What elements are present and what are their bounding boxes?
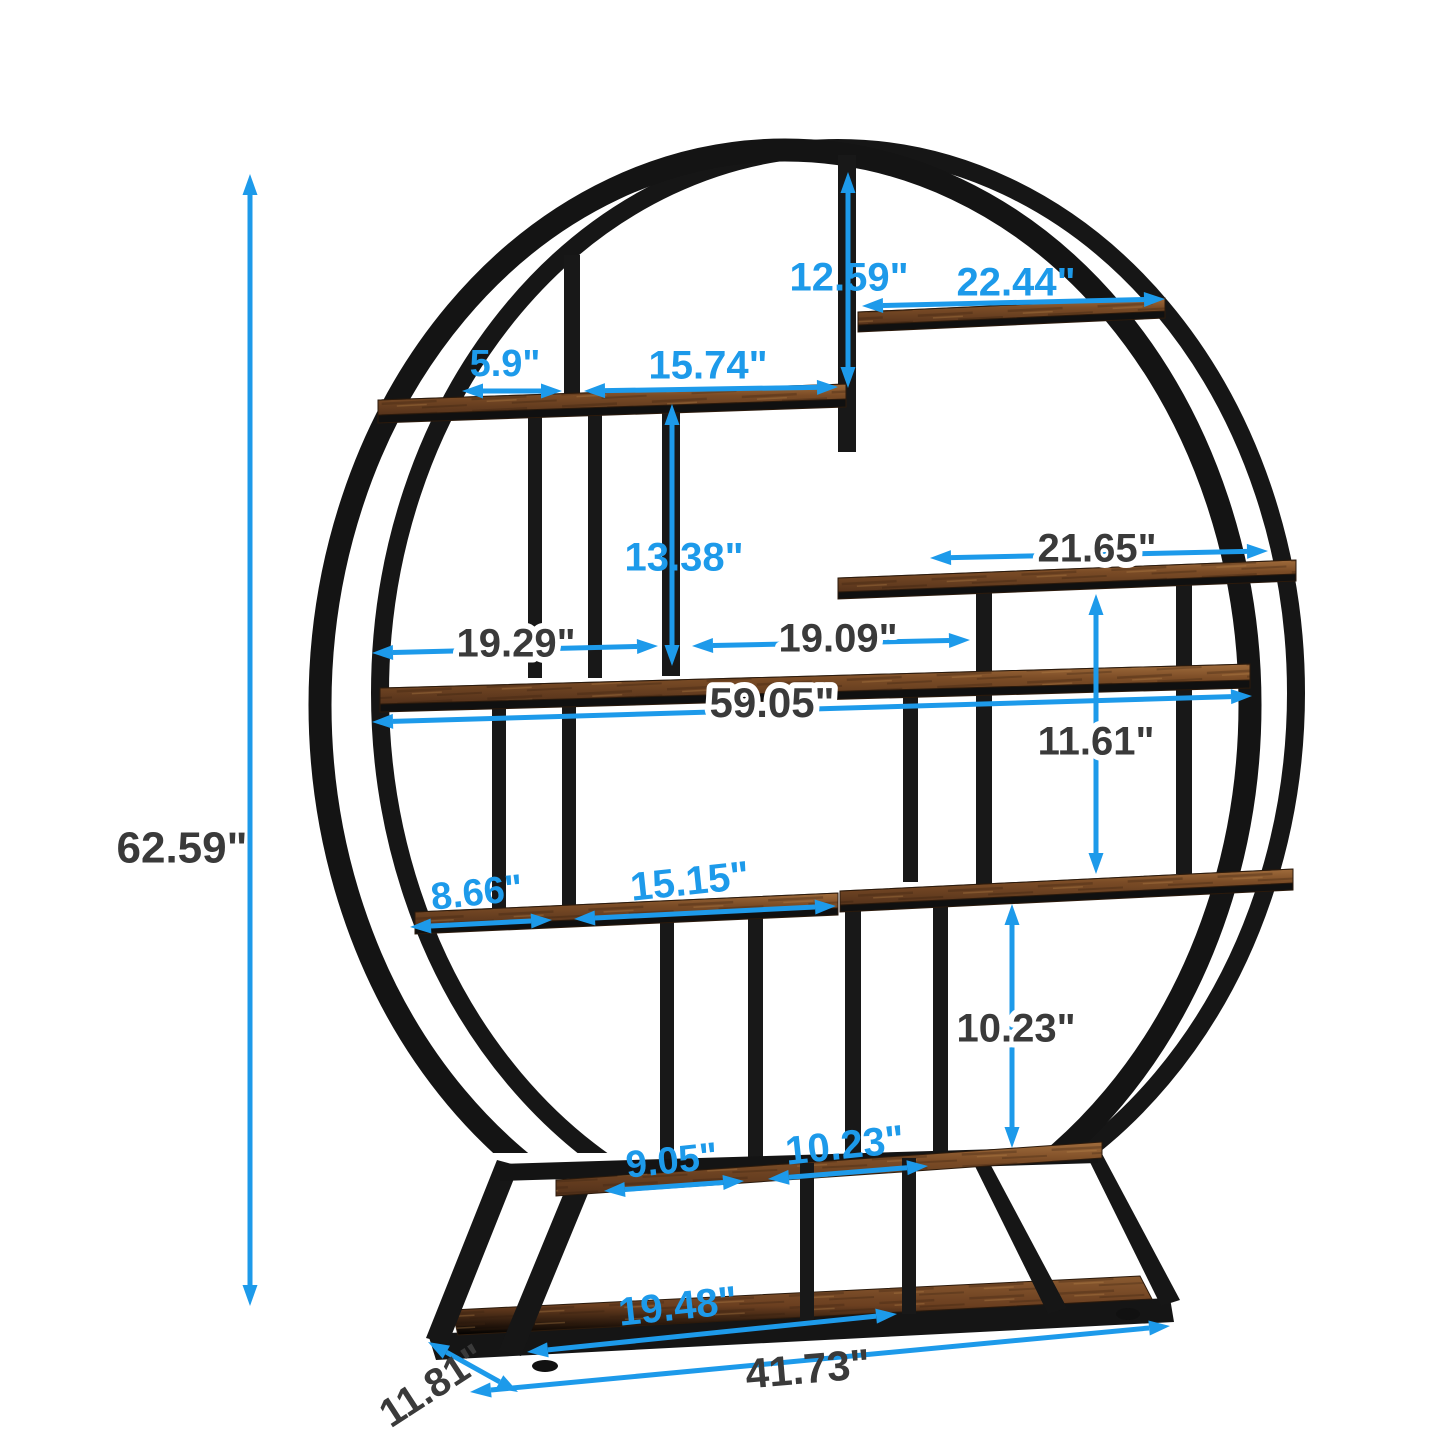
post-upper-b [588,406,602,678]
base-post-a [800,1163,814,1320]
dimension-upper-shelf-right-segment: 15.74" [584,344,838,399]
dim-label-middle-shelf-left-segment: 19.29" [456,622,575,666]
dimension-overall-height: 62.59" [117,174,258,1306]
arrowhead [862,298,883,313]
base-foot-right [1116,1308,1140,1320]
dim-label-right-gap-height: 11.61" [1038,720,1155,764]
arrowhead [243,1285,258,1306]
dimension-right-gap-height: 11.61" [1038,594,1155,874]
dim-label-top-shelf-width: 22.44" [956,261,1075,305]
dim-label-base-width: 41.73" [743,1340,872,1398]
dim-label-top-post-height: 12.59" [789,256,908,300]
arrowhead [1089,594,1104,615]
arrowhead [1247,544,1268,559]
dim-label-overall-width: 59.05" [709,679,834,726]
dimension-lower-shelf-left-segment: 8.66" [410,867,552,933]
arrowhead [243,174,258,195]
dim-label-upper-shelf-right-segment: 15.74" [648,344,767,388]
dimension-top-post-height: 12.59" [789,172,908,388]
dimension-line [605,387,817,390]
arrowhead [1005,1127,1020,1148]
arrowhead [692,638,713,653]
dimension-middle-shelf-right-segment: 19.09" [692,617,970,661]
dim-label-mid-post-height: 13.38" [624,536,743,580]
arrowhead [930,550,951,565]
dim-label-base-depth: 11.81" [372,1336,494,1437]
product-dimension-diagram: 62.59"12.59"22.44"5.9"15.74"13.38"21.65"… [0,0,1445,1445]
dimension-annotations: 62.59"12.59"22.44"5.9"15.74"13.38"21.65"… [117,172,1268,1436]
dimension-middle-shelf-left-segment: 19.29" [372,622,658,666]
base-foot-left [532,1360,558,1372]
post-right-frame-left [976,588,992,884]
base-post-b [902,1158,916,1314]
post-low-c [748,917,763,1171]
dim-label-overall-height: 62.59" [117,824,248,873]
post-right-frame-right [1176,578,1192,874]
arrowhead [1005,904,1020,925]
dim-label-middle-shelf-right-segment: 19.09" [778,617,897,661]
dimension-upper-shelf-left-segment: 5.9" [462,343,562,398]
arrowhead [949,633,970,648]
dimension-lower-right-gap-height: 10.23" [956,904,1075,1148]
dim-label-lower-right-gap-height: 10.23" [956,1007,1075,1051]
post-center-right [903,690,918,882]
dimension-mid-post-height: 13.38" [624,404,743,666]
post-low-b [933,900,948,1158]
arrowhead [637,639,658,654]
dim-label-right-shelf-width: 21.65" [1037,527,1156,571]
arrowhead [1089,853,1104,874]
post-low-d [660,920,674,1176]
post-top-left [564,255,580,400]
dim-label-upper-shelf-left-segment: 5.9" [470,343,541,385]
post-mid-left-b [562,698,576,910]
bookshelf-diagram-canvas: 62.59"12.59"22.44"5.9"15.74"13.38"21.65"… [0,0,1445,1445]
